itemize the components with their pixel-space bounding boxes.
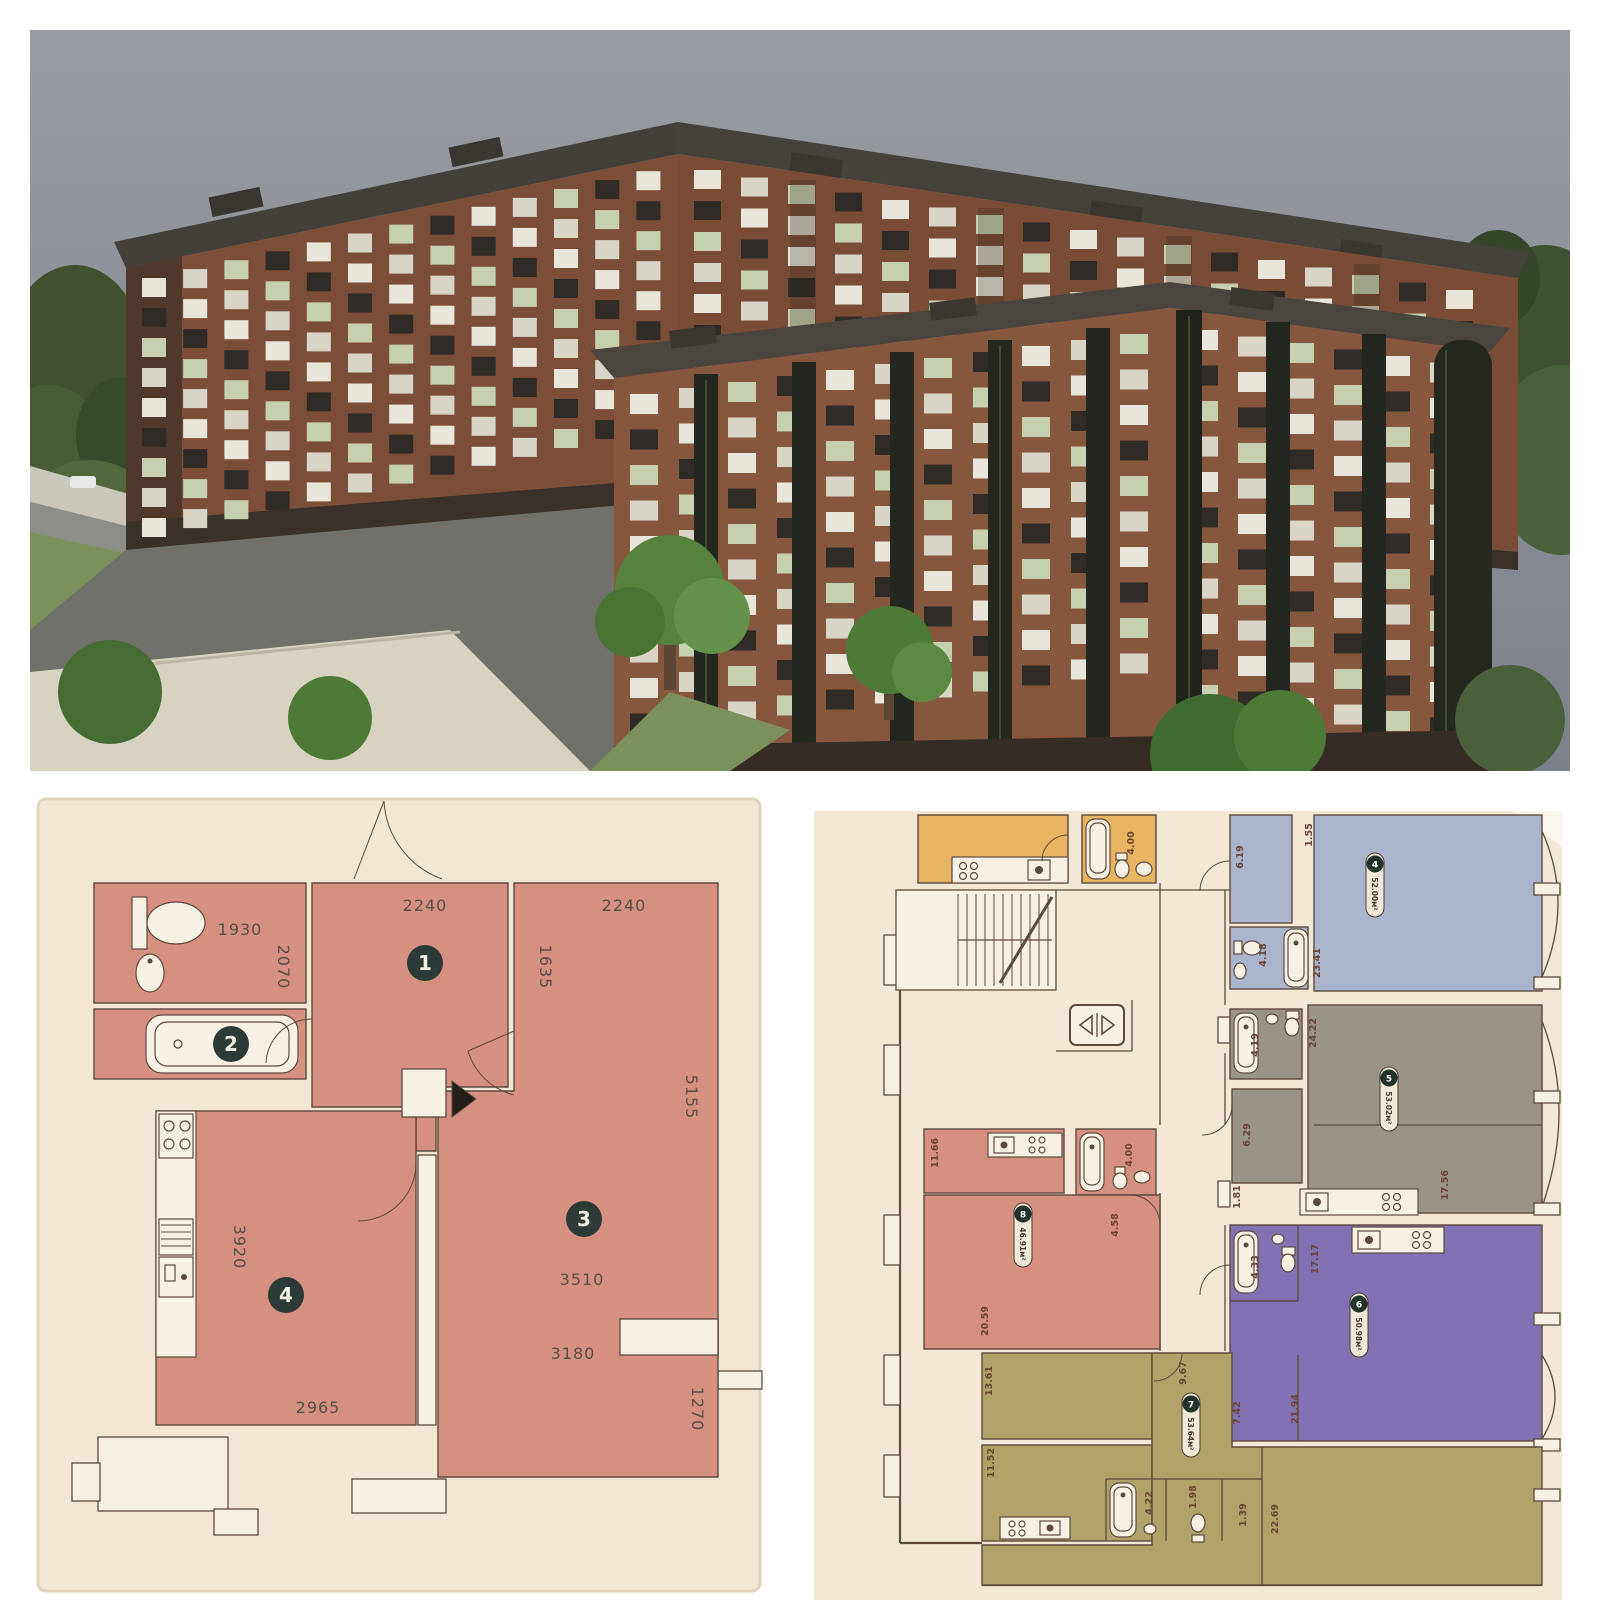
dim-apt6-bath: 4.33: [1250, 1255, 1261, 1278]
area-badge-apt7: 7 53.64м²: [1182, 1393, 1200, 1457]
orange-toilet: [1115, 860, 1129, 878]
badge-3: 3: [577, 1207, 591, 1231]
dim-apt8-bath: 4.00: [1124, 1143, 1135, 1167]
dim-apt5-room: 17.56: [1440, 1170, 1451, 1200]
stairwell: [896, 890, 1056, 990]
apartment-6: 4.33 17.17 7.42 21.94 6 50.98м²: [1230, 1225, 1560, 1451]
svg-text:7: 7: [1188, 1401, 1194, 1411]
stove: [159, 1114, 193, 1158]
apt8-sink: [1134, 1171, 1150, 1183]
dim-apt8-hall: 4.58: [1110, 1213, 1121, 1237]
svg-text:50.98м²: 50.98м²: [1354, 1317, 1363, 1350]
dim-apt6-room: 21.94: [1290, 1394, 1301, 1424]
dim-room3-height: 5155: [682, 1075, 701, 1120]
toilet: [147, 902, 205, 944]
dim-apt7-room1: 13.61: [984, 1366, 995, 1396]
apartment-4: 6.19 1.55 4.18 23.41 4 52.00м²: [1230, 815, 1560, 991]
real-estate-collage: 1930 2070 2240 2240 1635 5155 3920 3510 …: [0, 0, 1600, 1600]
svg-text:53.64м²: 53.64м²: [1186, 1417, 1195, 1450]
apt5-room: [1308, 1005, 1542, 1213]
radiator-niche: [620, 1319, 718, 1355]
svg-text:46.91м²: 46.91м²: [1018, 1227, 1027, 1260]
dim-apt6-kitchen: 17.17: [1310, 1244, 1321, 1274]
apt6-sink: [1272, 1234, 1284, 1244]
dim-bath-height: 2070: [274, 945, 293, 990]
building-render-svg: [30, 30, 1570, 771]
apt8-toilet: [1113, 1173, 1127, 1189]
dim-apt6-small: 7.42: [1232, 1401, 1243, 1424]
apt4-room: [1314, 815, 1542, 991]
apartment-8: 11.66 4.00 4.58 20.59 8 46.91м²: [924, 1129, 1160, 1349]
orange-sink: [1136, 862, 1152, 876]
dim-apt7-small: 1.39: [1238, 1503, 1249, 1526]
toilet-tank: [132, 897, 147, 949]
dim-apt5-bath: 4.19: [1250, 1033, 1261, 1056]
apartment-plan-floor: 4.00: [800, 795, 1572, 1600]
dim-niche: 1270: [688, 1387, 707, 1432]
dim-apt5-hall: 6.29: [1242, 1123, 1253, 1146]
badge-1: 1: [418, 951, 432, 975]
dim-kitchen-height: 3920: [230, 1225, 249, 1270]
apt4-sink: [1234, 963, 1246, 979]
single-plan-svg: 1930 2070 2240 2240 1635 5155 3920 3510 …: [28, 795, 768, 1595]
dim-apt4-room: 23.41: [1312, 948, 1323, 978]
dim-apt7-wc: 1.98: [1188, 1485, 1199, 1509]
dim-hall-width: 2240: [403, 896, 448, 915]
floor-plan-svg: 4.00: [800, 795, 1572, 1600]
svg-text:6: 6: [1356, 1301, 1362, 1311]
apt5-toilet: [1285, 1018, 1299, 1036]
svg-text:5: 5: [1386, 1075, 1392, 1085]
apartment-orange: 4.00: [918, 815, 1156, 883]
svg-text:4: 4: [1372, 861, 1378, 871]
apt8-room: [924, 1195, 1160, 1349]
duct: [418, 1155, 436, 1425]
badge-2: 2: [224, 1032, 238, 1056]
dim-apt4-bath: 4.18: [1258, 943, 1269, 967]
dim-kitchen-width: 2965: [296, 1398, 341, 1417]
dim-apt7-room3: 22.69: [1270, 1504, 1281, 1534]
area-badge-apt6: 6 50.98м²: [1350, 1293, 1368, 1357]
svg-text:52.00м²: 52.00м²: [1370, 877, 1379, 910]
glass-bays: [694, 310, 1492, 771]
area-badge-apt5: 5 53.02м²: [1380, 1067, 1398, 1131]
dim-apt5-top: 24.22: [1308, 1018, 1319, 1048]
dim-apt5-small: 1.81: [1232, 1185, 1243, 1208]
dim-apt4-top: 1.55: [1304, 823, 1315, 846]
kitchen-fixtures: [156, 1111, 196, 1357]
dim-room3-top: 2240: [602, 896, 647, 915]
dim-apt4-hall: 6.19: [1235, 845, 1246, 868]
apt7-sink: [1144, 1524, 1156, 1534]
area-badge-apt8: 8 46.91м²: [1014, 1203, 1032, 1267]
car: [70, 476, 96, 488]
front-building: [590, 282, 1510, 771]
dim-orange-bath: 4.00: [1126, 831, 1137, 855]
dim-room3-lower: 3180: [551, 1344, 596, 1363]
svg-text:8: 8: [1020, 1211, 1026, 1221]
apt6-toilet: [1281, 1254, 1295, 1272]
dim-room3-width: 3510: [560, 1270, 605, 1289]
building-render-photo: [30, 30, 1570, 771]
apt6-room: [1230, 1225, 1542, 1441]
dim-apt7-bath: 4.22: [1144, 1491, 1155, 1514]
kitchen-sink: [159, 1257, 193, 1297]
badge-4: 4: [279, 1283, 293, 1307]
area-badge-apt4: 4 52.00м²: [1366, 853, 1384, 917]
dim-bath-width: 1930: [218, 920, 263, 939]
dim-apt8-kitchen: 11.66: [930, 1138, 941, 1168]
apartment-plan-single: 1930 2070 2240 2240 1635 5155 3920 3510 …: [28, 795, 768, 1595]
dim-apt7-room2: 11.52: [986, 1448, 997, 1478]
apt7-toilet: [1191, 1514, 1205, 1532]
dim-apt8-room: 20.59: [980, 1306, 991, 1336]
apartment-5: 24.22 4.19 6.29 17.56 1.81 5 53.02м²: [1230, 1005, 1560, 1215]
apt7-room1: [982, 1353, 1152, 1439]
dim-hall-height: 1635: [536, 945, 555, 990]
svg-text:53.02м²: 53.02м²: [1384, 1091, 1393, 1124]
apt5-sink: [1266, 1014, 1278, 1024]
drying-rack: [159, 1219, 193, 1255]
